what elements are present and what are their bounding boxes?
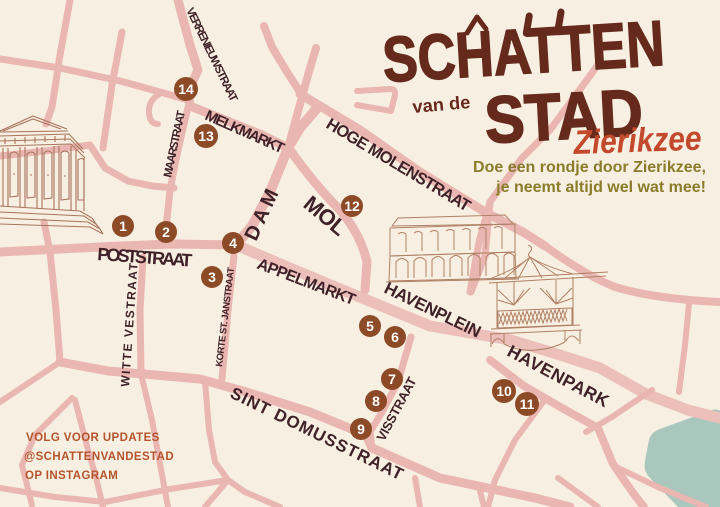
svg-text:OP INSTAGRAM: OP INSTAGRAM — [25, 470, 118, 482]
svg-text:Zierikzee: Zierikzee — [572, 120, 702, 162]
svg-text:12: 12 — [344, 198, 360, 214]
svg-text:6: 6 — [391, 329, 399, 345]
svg-text:je neemt altijd wel wat mee!: je neemt altijd wel wat mee! — [495, 179, 706, 196]
svg-text:2: 2 — [162, 224, 170, 240]
svg-text:@SCHATTENVANDESTAD: @SCHATTENVANDESTAD — [24, 451, 174, 463]
svg-text:14: 14 — [178, 81, 194, 97]
svg-text:VOLG VOOR UPDATES: VOLG VOOR UPDATES — [26, 432, 160, 444]
svg-text:Doe een rondje door Zierikzee,: Doe een rondje door Zierikzee, — [473, 159, 706, 176]
svg-text:3: 3 — [208, 269, 216, 285]
svg-text:5: 5 — [366, 318, 374, 334]
svg-text:8: 8 — [372, 393, 380, 409]
svg-text:7: 7 — [388, 371, 396, 387]
svg-text:11: 11 — [520, 396, 535, 412]
svg-text:1: 1 — [119, 218, 127, 234]
svg-text:10: 10 — [496, 383, 512, 399]
svg-text:9: 9 — [357, 421, 365, 437]
svg-text:4: 4 — [229, 235, 237, 251]
svg-text:13: 13 — [198, 128, 214, 144]
